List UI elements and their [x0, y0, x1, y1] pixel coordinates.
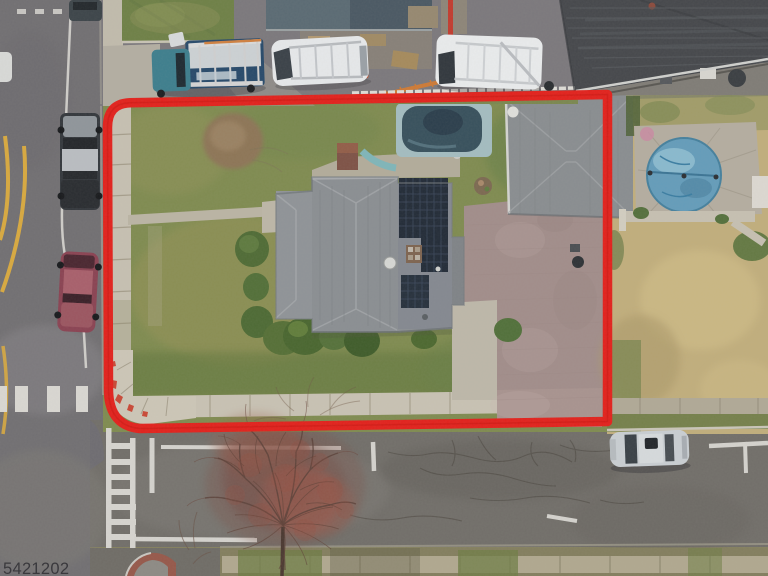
svg-text:5421202: 5421202 [3, 560, 69, 576]
